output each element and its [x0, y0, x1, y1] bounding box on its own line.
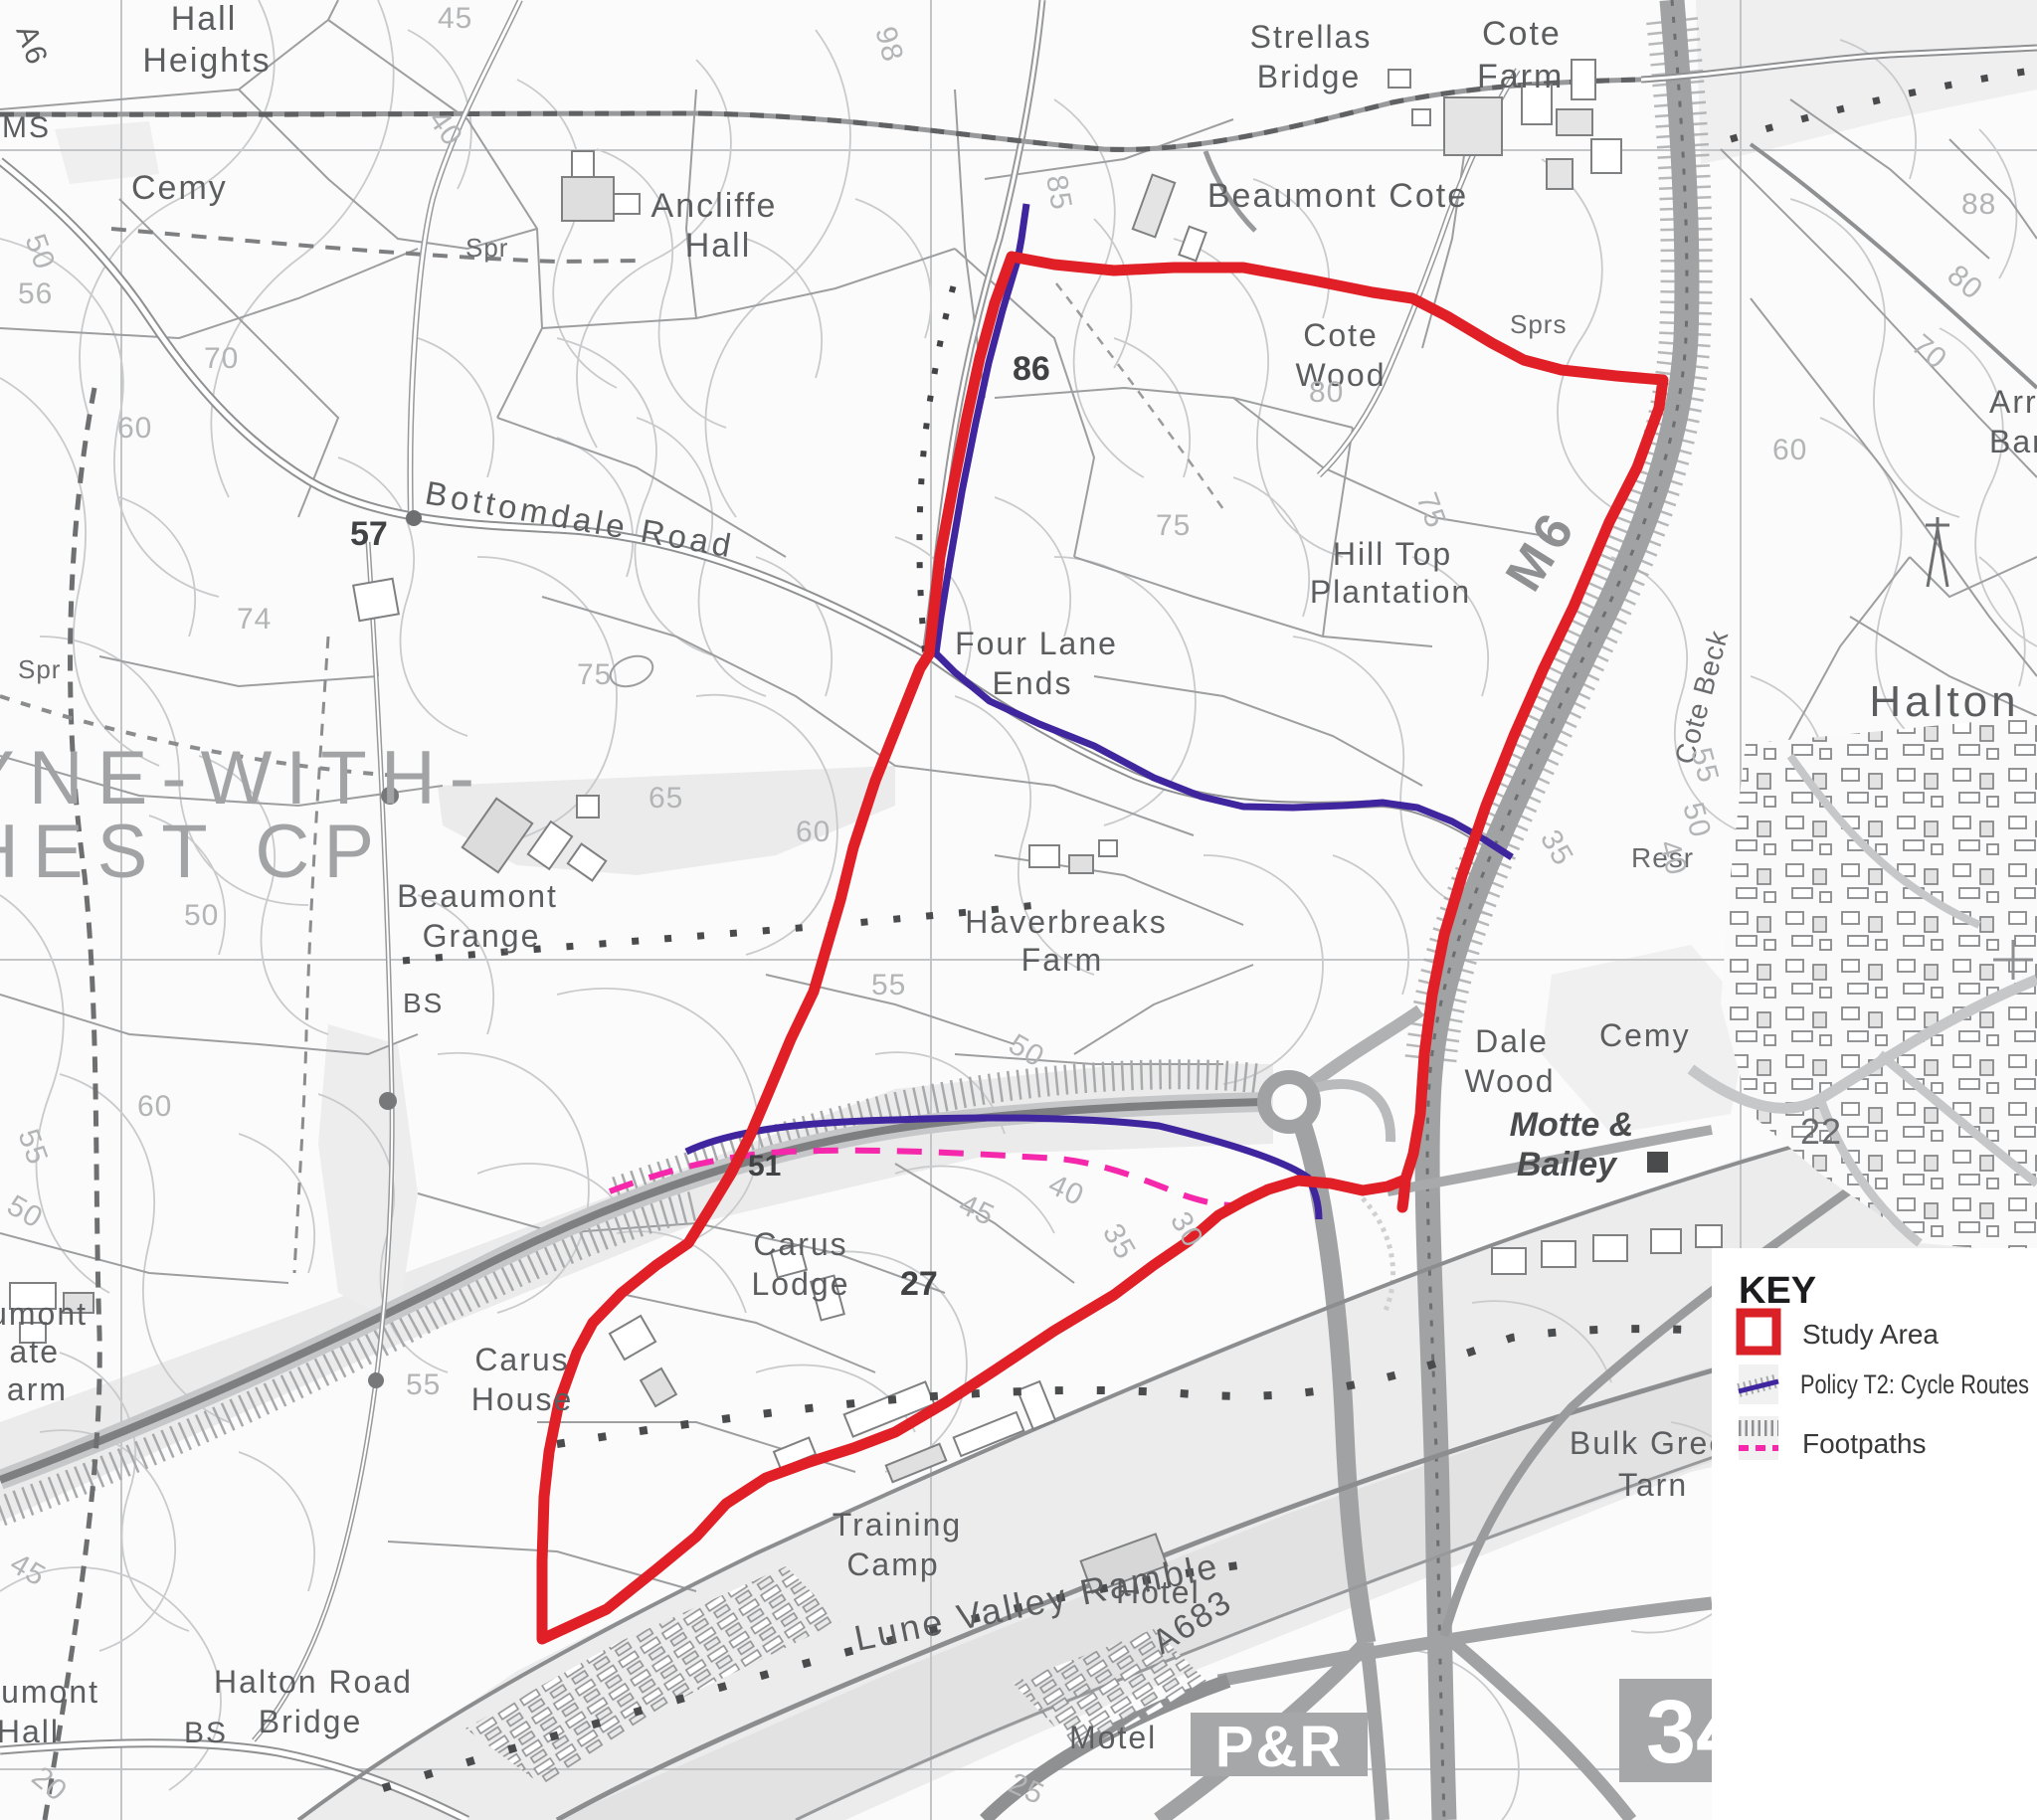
- svg-text:Bridge: Bridge: [1257, 59, 1362, 94]
- svg-text:Training: Training: [833, 1507, 962, 1543]
- svg-text:Cemy: Cemy: [1599, 1017, 1691, 1053]
- svg-text:Four Lane: Four Lane: [955, 626, 1118, 661]
- svg-text:22: 22: [1800, 1111, 1842, 1152]
- svg-text:Hall: Hall: [171, 0, 238, 38]
- svg-text:55: 55: [406, 1368, 441, 1401]
- svg-text:Barn: Barn: [1989, 424, 2037, 459]
- svg-text:55: 55: [871, 969, 906, 1001]
- svg-text:45: 45: [438, 2, 472, 35]
- svg-text:Spr: Spr: [465, 233, 508, 263]
- svg-text:Bridge: Bridge: [259, 1704, 363, 1739]
- svg-text:Cote: Cote: [1482, 15, 1562, 53]
- svg-text:Wood: Wood: [1464, 1063, 1555, 1099]
- svg-text:Lodge: Lodge: [752, 1266, 850, 1302]
- svg-text:arm: arm: [7, 1371, 68, 1407]
- svg-text:Haverbreaks: Haverbreaks: [965, 904, 1167, 940]
- svg-text:Hall: Hall: [685, 227, 752, 265]
- svg-text:65: 65: [648, 782, 683, 815]
- svg-text:Hall: Hall: [0, 1714, 60, 1749]
- svg-text:27: 27: [900, 1265, 938, 1303]
- svg-text:YNE-WITH-: YNE-WITH-: [0, 736, 488, 820]
- svg-text:88: 88: [1961, 188, 1996, 221]
- svg-text:Study Area: Study Area: [1802, 1319, 1939, 1350]
- svg-text:House: House: [471, 1381, 574, 1417]
- svg-text:Ends: Ends: [993, 665, 1073, 701]
- svg-text:MS: MS: [2, 111, 51, 144]
- svg-text:Dale: Dale: [1475, 1023, 1549, 1059]
- svg-text:umont: umont: [1, 1674, 99, 1710]
- svg-text:Hill Top: Hill Top: [1333, 536, 1452, 572]
- svg-text:Cote: Cote: [1303, 317, 1379, 353]
- svg-text:60: 60: [117, 412, 152, 445]
- svg-text:60: 60: [796, 816, 831, 848]
- svg-text:Bailey: Bailey: [1517, 1146, 1618, 1183]
- svg-text:75: 75: [577, 658, 612, 691]
- svg-text:Tarn: Tarn: [1618, 1467, 1688, 1503]
- svg-text:Arro: Arro: [1989, 384, 2037, 420]
- svg-text:85: 85: [1039, 172, 1078, 213]
- svg-text:60: 60: [1772, 434, 1807, 466]
- svg-text:Motte &: Motte &: [1510, 1106, 1634, 1144]
- svg-text:Farm: Farm: [1477, 58, 1564, 95]
- svg-text:Beaumont Cote: Beaumont Cote: [1207, 177, 1468, 215]
- svg-text:Plantation: Plantation: [1310, 574, 1471, 610]
- svg-text:Cemy: Cemy: [131, 169, 228, 207]
- svg-text:Footpaths: Footpaths: [1802, 1428, 1927, 1459]
- svg-text:umont: umont: [0, 1296, 88, 1332]
- svg-text:Bulk Gree: Bulk Gree: [1570, 1425, 1729, 1461]
- svg-text:51: 51: [748, 1150, 781, 1183]
- svg-text:BS: BS: [184, 1717, 228, 1749]
- svg-text:Beaumont: Beaumont: [397, 878, 558, 914]
- svg-text:60: 60: [137, 1090, 172, 1123]
- svg-text:Policy T2: Cycle Routes: Policy T2: Cycle Routes: [1800, 1369, 2029, 1399]
- svg-text:Halton Road: Halton Road: [214, 1664, 413, 1700]
- svg-text:80: 80: [1309, 376, 1344, 409]
- svg-text:Strellas: Strellas: [1250, 19, 1373, 55]
- svg-text:Heights: Heights: [142, 42, 271, 80]
- svg-text:56: 56: [18, 277, 53, 310]
- svg-text:BS: BS: [403, 988, 444, 1018]
- svg-text:Camp: Camp: [846, 1547, 939, 1582]
- svg-text:75: 75: [1156, 509, 1191, 542]
- svg-text:ate: ate: [10, 1334, 60, 1369]
- svg-text:Ancliffe: Ancliffe: [651, 187, 778, 225]
- svg-text:Carus: Carus: [474, 1342, 569, 1377]
- svg-text:Grange: Grange: [423, 918, 541, 954]
- svg-text:50: 50: [184, 899, 219, 932]
- svg-text:KEY: KEY: [1739, 1270, 1816, 1312]
- svg-text:70: 70: [204, 342, 239, 375]
- svg-text:57: 57: [350, 515, 388, 553]
- svg-text:Sprs: Sprs: [1510, 309, 1567, 339]
- svg-text:74: 74: [237, 603, 272, 636]
- svg-text:Motel: Motel: [1069, 1720, 1157, 1755]
- svg-text:Halton: Halton: [1869, 677, 2019, 726]
- svg-text:Spr: Spr: [18, 654, 61, 684]
- svg-text:Carus: Carus: [753, 1226, 847, 1262]
- svg-text:HEST CP: HEST CP: [0, 810, 388, 894]
- svg-text:Farm: Farm: [1021, 942, 1104, 978]
- svg-text:P&R: P&R: [1215, 1715, 1343, 1779]
- svg-text:86: 86: [1013, 350, 1050, 388]
